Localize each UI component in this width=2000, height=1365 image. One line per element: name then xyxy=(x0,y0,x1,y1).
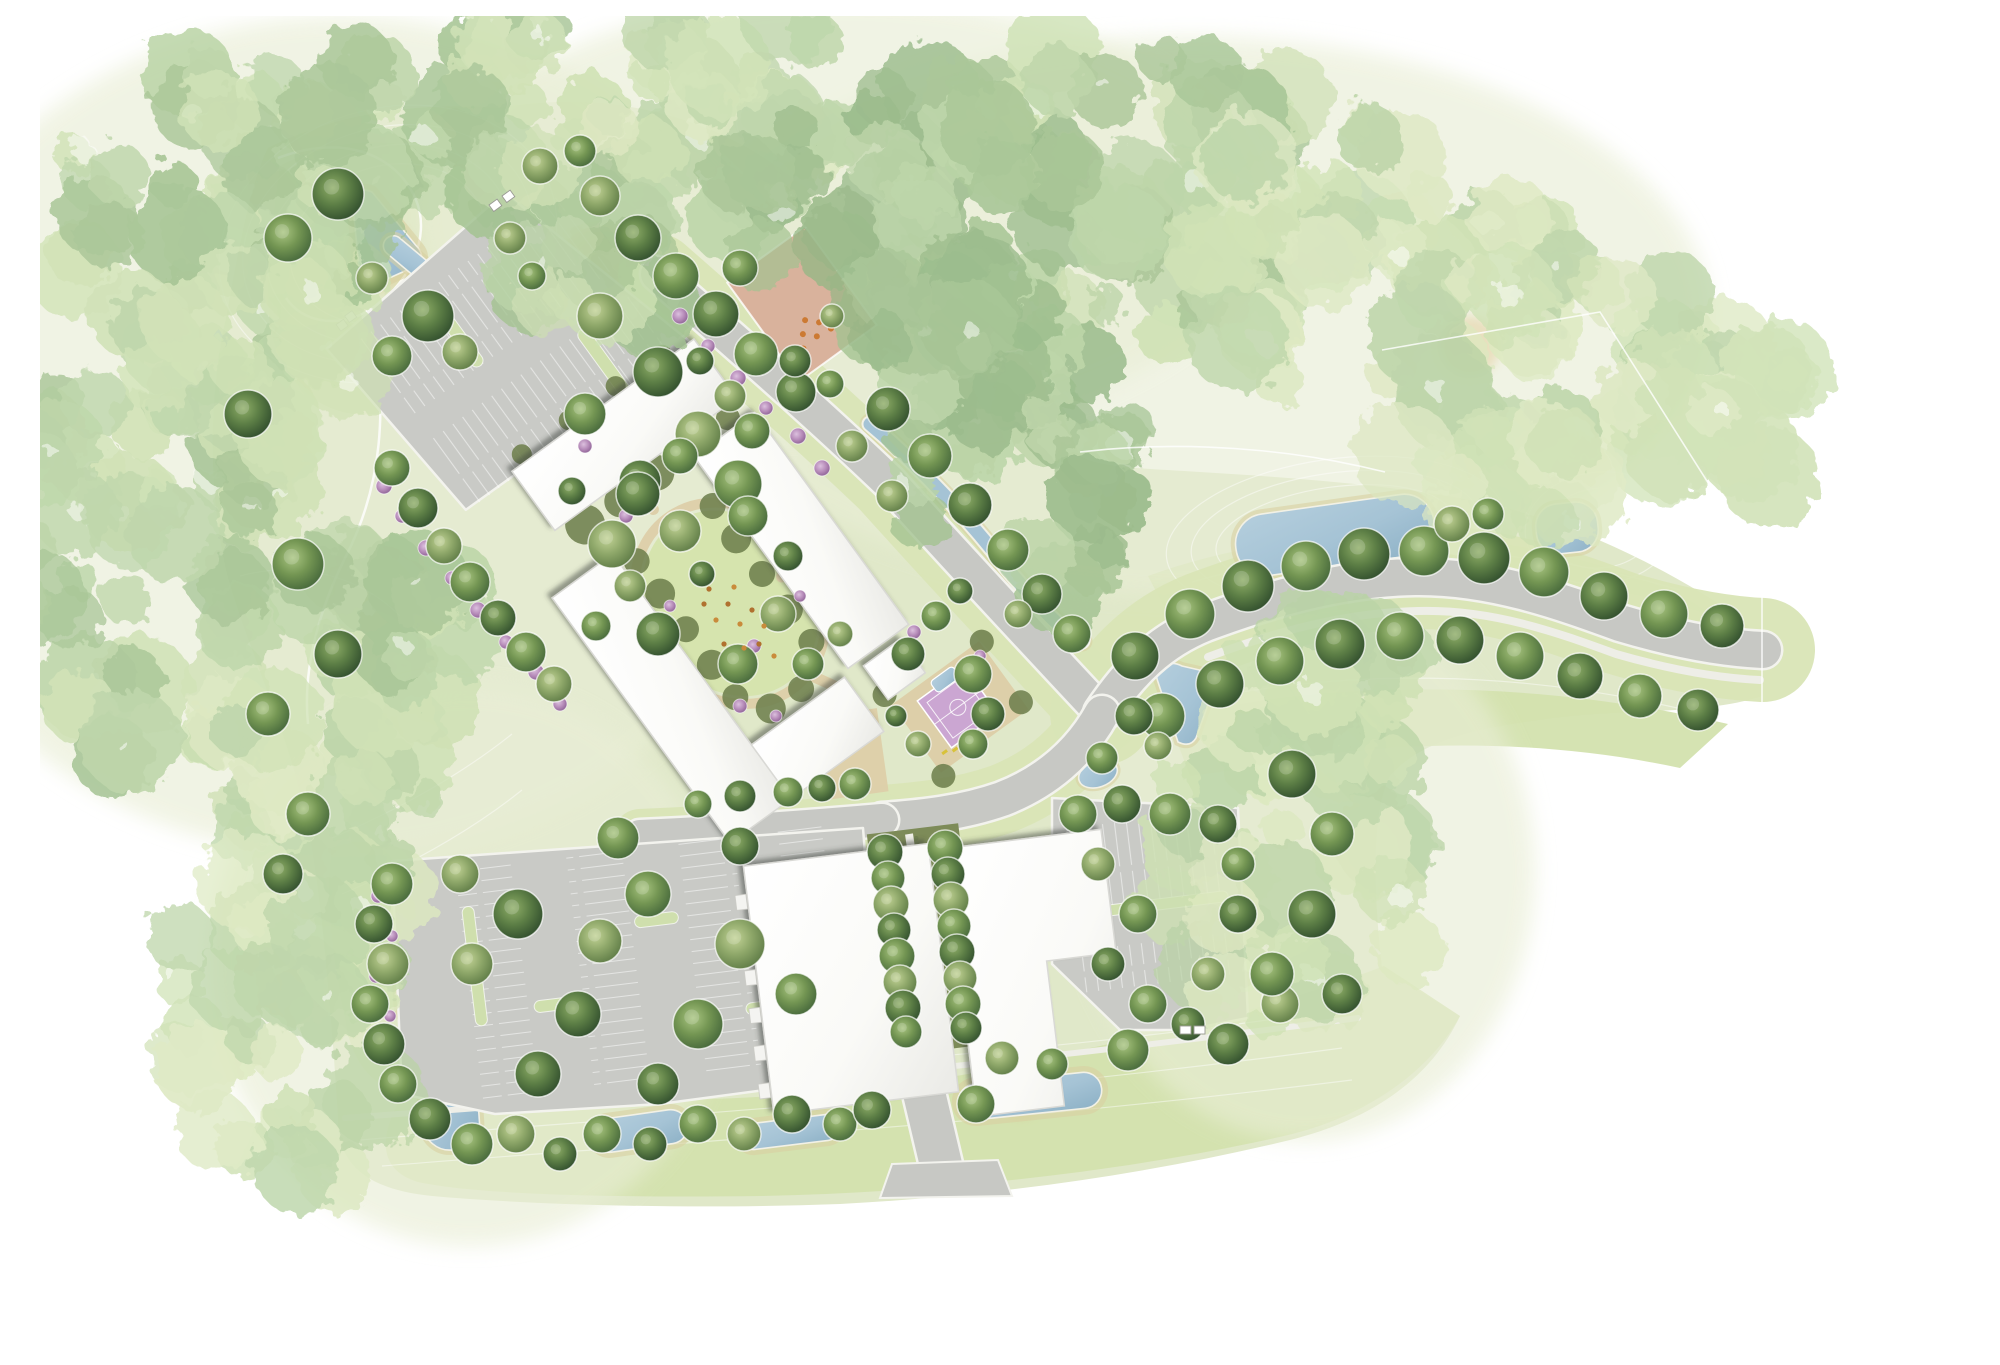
tree xyxy=(775,973,817,1015)
lawn-furniture-dot xyxy=(761,623,766,628)
lawn-furniture-dot xyxy=(701,601,706,606)
tree xyxy=(836,430,868,462)
tree xyxy=(1557,653,1603,699)
lawn-furniture-dot xyxy=(756,641,761,646)
tree xyxy=(921,601,951,631)
tree xyxy=(633,1127,667,1161)
tree xyxy=(588,520,636,568)
tree xyxy=(1036,1048,1068,1080)
tree xyxy=(451,1123,493,1165)
tree xyxy=(971,697,1005,731)
tree xyxy=(714,380,746,412)
tree xyxy=(564,393,606,435)
tree xyxy=(363,1023,405,1065)
tree xyxy=(1103,785,1141,823)
tree xyxy=(497,1115,535,1153)
tree xyxy=(728,496,768,536)
tree xyxy=(1281,541,1331,591)
tree xyxy=(908,434,952,478)
tree xyxy=(891,637,925,671)
tree xyxy=(987,529,1029,571)
tree xyxy=(597,817,639,859)
tree xyxy=(1376,612,1424,660)
tree xyxy=(1288,890,1336,938)
tree xyxy=(792,648,824,680)
lawn-furniture-dot xyxy=(713,617,718,622)
tree xyxy=(426,528,462,564)
tree xyxy=(718,644,758,684)
tree xyxy=(614,570,646,602)
tree xyxy=(1310,812,1354,856)
tree xyxy=(721,827,759,865)
flowering-shrub xyxy=(770,710,782,722)
tree xyxy=(1677,689,1719,731)
tree xyxy=(808,774,836,802)
tree xyxy=(625,871,671,917)
tree xyxy=(653,253,699,299)
flowering-shrub xyxy=(790,428,806,444)
tree xyxy=(637,1063,679,1105)
flowering-shrub xyxy=(578,439,592,453)
tree xyxy=(372,336,412,376)
tree xyxy=(1053,615,1091,653)
tree xyxy=(773,541,803,571)
flowering-shrub xyxy=(733,699,747,713)
tree xyxy=(371,863,413,905)
tree xyxy=(493,889,543,939)
tree xyxy=(734,332,778,376)
lawn-furniture-dot xyxy=(721,641,726,646)
tree xyxy=(558,477,586,505)
tree xyxy=(1322,974,1362,1014)
tree xyxy=(1580,572,1628,620)
tree xyxy=(779,345,811,377)
tree xyxy=(776,372,816,412)
tree xyxy=(816,370,844,398)
tree xyxy=(286,792,330,836)
tree xyxy=(543,1137,577,1171)
flowering-shrub xyxy=(794,590,806,602)
tree xyxy=(312,168,364,220)
tree xyxy=(985,1041,1019,1075)
tree xyxy=(506,632,546,672)
entry-road-flare xyxy=(880,1160,1012,1198)
tree xyxy=(890,1016,922,1048)
tree xyxy=(1618,674,1662,718)
tree xyxy=(1221,847,1255,881)
tree xyxy=(577,293,623,339)
flowering-shrub xyxy=(759,401,773,415)
balcony xyxy=(744,970,757,986)
tree xyxy=(1640,590,1688,638)
flowering-shrub xyxy=(664,600,676,612)
tree xyxy=(1115,697,1153,735)
tree xyxy=(450,562,490,602)
balcony xyxy=(758,1083,771,1099)
site-plan xyxy=(40,16,2000,1349)
tree xyxy=(905,731,931,757)
tree xyxy=(272,538,324,590)
residential-building xyxy=(743,844,958,1115)
tree xyxy=(1171,1007,1205,1041)
tree xyxy=(374,450,410,486)
lawn-furniture-dot xyxy=(737,621,742,626)
tree xyxy=(451,943,493,985)
tree xyxy=(1149,793,1191,835)
tree xyxy=(950,1012,982,1044)
tree xyxy=(263,854,303,894)
tree xyxy=(555,991,601,1037)
lawn-furniture-dot xyxy=(741,645,746,650)
balcony xyxy=(749,1007,762,1023)
tree xyxy=(662,438,698,474)
tree xyxy=(409,1098,451,1140)
tree xyxy=(351,985,389,1023)
lawn-furniture-dot xyxy=(749,607,754,612)
flowering-shrub xyxy=(814,460,830,476)
tree xyxy=(947,578,973,604)
tree xyxy=(633,347,683,397)
tree xyxy=(722,250,758,286)
tree xyxy=(1196,660,1244,708)
balcony xyxy=(735,894,748,910)
tree xyxy=(583,1115,621,1153)
tree xyxy=(1086,742,1118,774)
tree xyxy=(1111,632,1159,680)
tree xyxy=(580,176,620,216)
tree xyxy=(1107,1029,1149,1071)
tree xyxy=(494,222,526,254)
tree xyxy=(398,488,438,528)
tree xyxy=(866,387,910,431)
tree xyxy=(1700,604,1744,648)
tree xyxy=(442,334,478,370)
tree xyxy=(659,510,701,552)
tree xyxy=(1144,732,1172,760)
tree xyxy=(1199,805,1237,843)
tree xyxy=(684,790,712,818)
utility-box xyxy=(1194,1026,1205,1034)
tree xyxy=(839,768,871,800)
tree xyxy=(1315,619,1365,669)
tree xyxy=(957,1085,995,1123)
tree xyxy=(578,919,622,963)
tree xyxy=(616,472,660,516)
tree xyxy=(734,413,770,449)
tree xyxy=(1059,795,1097,833)
tree xyxy=(1191,957,1225,991)
tree xyxy=(715,919,765,969)
tree xyxy=(615,215,661,261)
tree xyxy=(314,630,362,678)
tree xyxy=(853,1091,891,1129)
tree xyxy=(1129,985,1167,1023)
tree xyxy=(1119,895,1157,933)
tree xyxy=(679,1105,717,1143)
tree xyxy=(356,262,388,294)
tree xyxy=(402,290,454,342)
tree xyxy=(673,999,723,1049)
tree xyxy=(724,780,756,812)
tree xyxy=(1434,506,1470,542)
site-plan-canvas xyxy=(40,16,2000,1349)
tree xyxy=(1256,637,1304,685)
tree xyxy=(1219,895,1257,933)
tree xyxy=(1091,947,1125,981)
tree xyxy=(689,561,715,587)
tree xyxy=(518,262,546,290)
tree xyxy=(686,347,714,375)
tree xyxy=(727,1117,761,1151)
tree xyxy=(480,600,516,636)
tree xyxy=(1458,532,1510,584)
tree xyxy=(1222,560,1274,612)
lawn-furniture-dot xyxy=(706,586,711,591)
tree xyxy=(264,214,312,262)
tree xyxy=(246,692,290,736)
tree xyxy=(820,304,844,328)
lawn-furniture-dot xyxy=(731,584,736,589)
flowering-shrub xyxy=(672,308,688,324)
tree xyxy=(441,855,479,893)
tree xyxy=(773,1095,811,1133)
tree xyxy=(224,390,272,438)
tree xyxy=(958,729,988,759)
tree xyxy=(1165,589,1215,639)
utility-box xyxy=(1180,1026,1191,1034)
lawn-furniture-dot xyxy=(725,601,730,606)
tree xyxy=(636,612,680,656)
tree xyxy=(1472,498,1504,530)
balcony xyxy=(753,1045,766,1061)
tree xyxy=(1496,632,1544,680)
lawn-furniture-dot xyxy=(771,653,776,658)
tree xyxy=(379,1065,417,1103)
tree xyxy=(1004,600,1032,628)
tree xyxy=(367,943,409,985)
tree xyxy=(773,777,803,807)
tree xyxy=(827,621,853,647)
tree xyxy=(536,666,572,702)
tree xyxy=(522,148,558,184)
tree xyxy=(1436,616,1484,664)
tree xyxy=(564,135,596,167)
tree xyxy=(1081,847,1115,881)
tree xyxy=(1207,1023,1249,1065)
tree xyxy=(1250,952,1294,996)
tree xyxy=(693,291,739,337)
tree xyxy=(1519,547,1569,597)
tree xyxy=(515,1051,561,1097)
tree xyxy=(948,483,992,527)
tree xyxy=(885,705,907,727)
tree xyxy=(954,655,992,693)
tree xyxy=(1338,528,1390,580)
tree xyxy=(355,905,393,943)
tree xyxy=(1268,750,1316,798)
tree xyxy=(581,611,611,641)
tree xyxy=(823,1107,857,1141)
tree xyxy=(876,480,908,512)
